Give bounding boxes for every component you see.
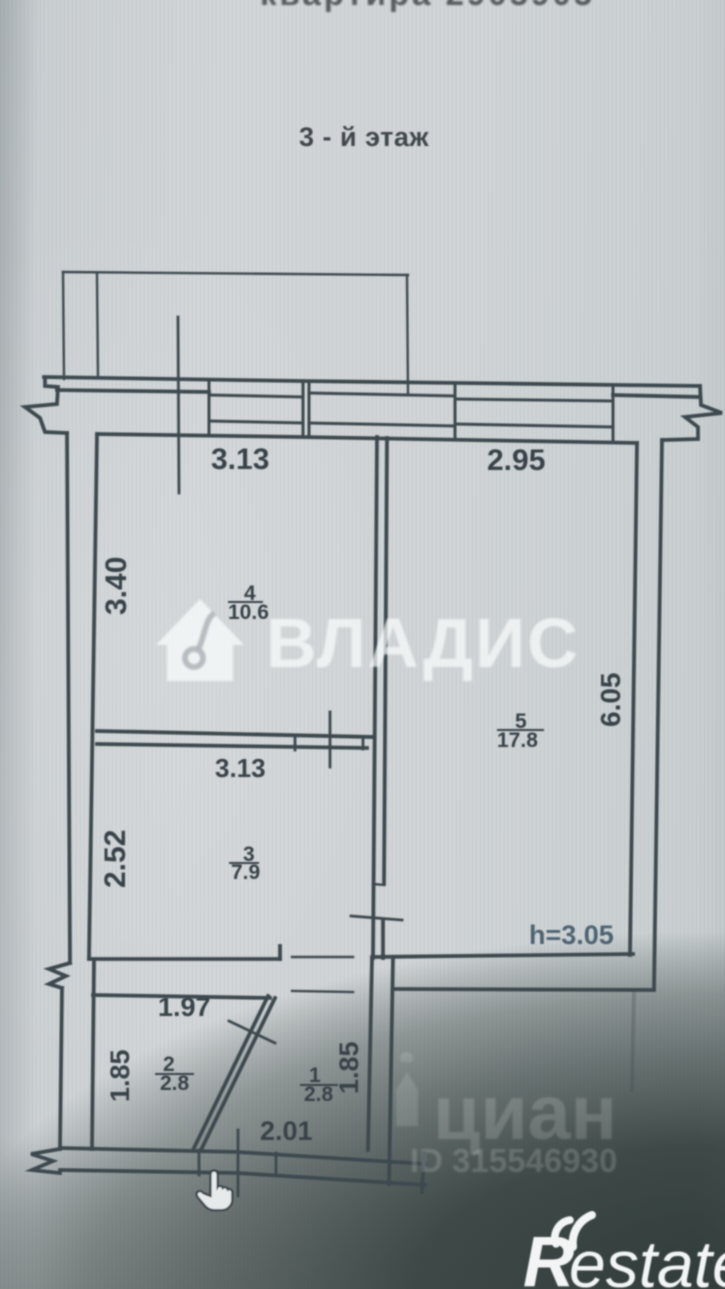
svg-text:3.13: 3.13 [215, 753, 266, 783]
svg-text:3.40: 3.40 [100, 557, 133, 615]
svg-text:2.8: 2.8 [160, 1072, 190, 1095]
svg-text:7.9: 7.9 [231, 861, 260, 884]
svg-text:3.13: 3.13 [211, 443, 269, 476]
svg-text:2.52: 2.52 [99, 830, 132, 888]
svg-text:3 - й этаж: 3 - й этаж [299, 122, 429, 152]
svg-text:R: R [523, 1223, 574, 1289]
svg-text:2.01: 2.01 [260, 1116, 313, 1146]
svg-text:h=3.05: h=3.05 [529, 920, 614, 950]
svg-text:1.97: 1.97 [158, 992, 211, 1022]
svg-text:6.05: 6.05 [595, 673, 626, 728]
svg-text:17.8: 17.8 [497, 729, 538, 752]
svg-text:10.6: 10.6 [228, 601, 269, 624]
svg-text:2.95: 2.95 [487, 444, 545, 477]
svg-text:2.8: 2.8 [304, 1083, 334, 1106]
svg-text:estate: estate [569, 1227, 725, 1289]
svg-text:ID 315546930: ID 315546930 [410, 1142, 617, 1179]
svg-text:ВЛАДИС: ВЛАДИС [266, 604, 580, 682]
svg-text:1.85: 1.85 [105, 1049, 135, 1102]
svg-text:1.85: 1.85 [334, 1041, 364, 1094]
